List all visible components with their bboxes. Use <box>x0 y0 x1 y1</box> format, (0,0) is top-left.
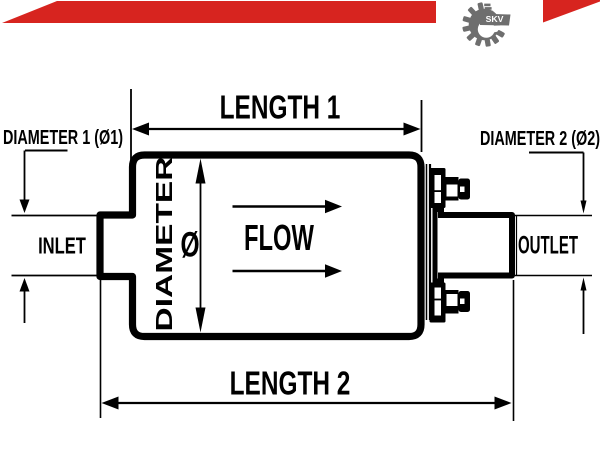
svg-text:SKV: SKV <box>486 14 504 24</box>
